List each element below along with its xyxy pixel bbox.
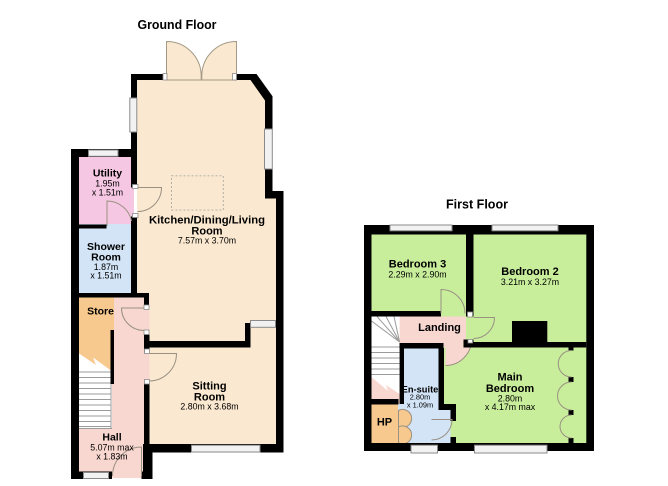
svg-text:HP: HP [377, 417, 392, 429]
svg-text:x 1.83m: x 1.83m [96, 451, 127, 461]
svg-text:x 1.51m: x 1.51m [90, 271, 121, 281]
svg-text:x 1.51m: x 1.51m [92, 187, 123, 197]
svg-text:First Floor: First Floor [446, 197, 508, 212]
svg-text:Store: Store [87, 306, 114, 318]
svg-text:Ground Floor: Ground Floor [138, 17, 217, 32]
svg-text:Landing: Landing [418, 322, 461, 334]
svg-text:2.80m x 3.68m: 2.80m x 3.68m [180, 402, 238, 412]
svg-text:7.57m x 3.70m: 7.57m x 3.70m [178, 236, 236, 246]
svg-text:x 1.09m: x 1.09m [407, 401, 433, 410]
svg-text:x 4.17m max: x 4.17m max [485, 402, 536, 412]
svg-text:2.29m x 2.90m: 2.29m x 2.90m [388, 270, 446, 280]
svg-text:3.21m x 3.27m: 3.21m x 3.27m [501, 277, 559, 287]
svg-text:Main: Main [497, 372, 522, 384]
